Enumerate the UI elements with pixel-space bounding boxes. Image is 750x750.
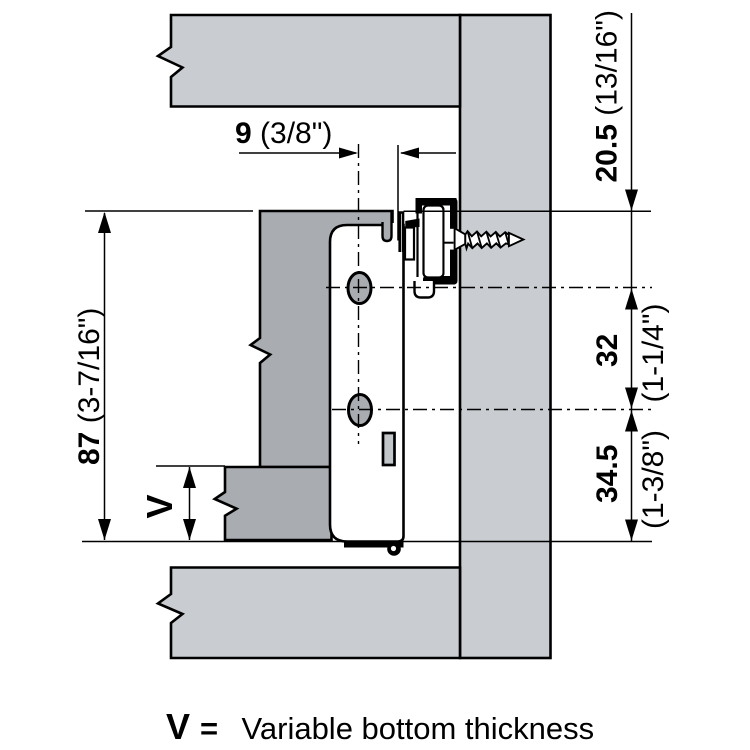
svg-text:=: = bbox=[200, 711, 218, 746]
svg-text:V: V bbox=[166, 706, 190, 747]
svg-text:87 (3-7/16"): 87 (3-7/16") bbox=[73, 308, 106, 465]
svg-text:20.5 (13/16"): 20.5 (13/16") bbox=[591, 10, 624, 182]
svg-text:V: V bbox=[139, 494, 180, 518]
svg-text:(1-1/4"): (1-1/4") bbox=[637, 303, 670, 402]
svg-text:9 (3/8"): 9 (3/8") bbox=[235, 117, 332, 150]
svg-text:32: 32 bbox=[591, 334, 624, 367]
svg-text:34.5: 34.5 bbox=[591, 445, 624, 503]
svg-text:(1-3/8"): (1-3/8") bbox=[637, 430, 670, 529]
svg-text:Variable bottom thickness: Variable bottom thickness bbox=[242, 711, 595, 746]
